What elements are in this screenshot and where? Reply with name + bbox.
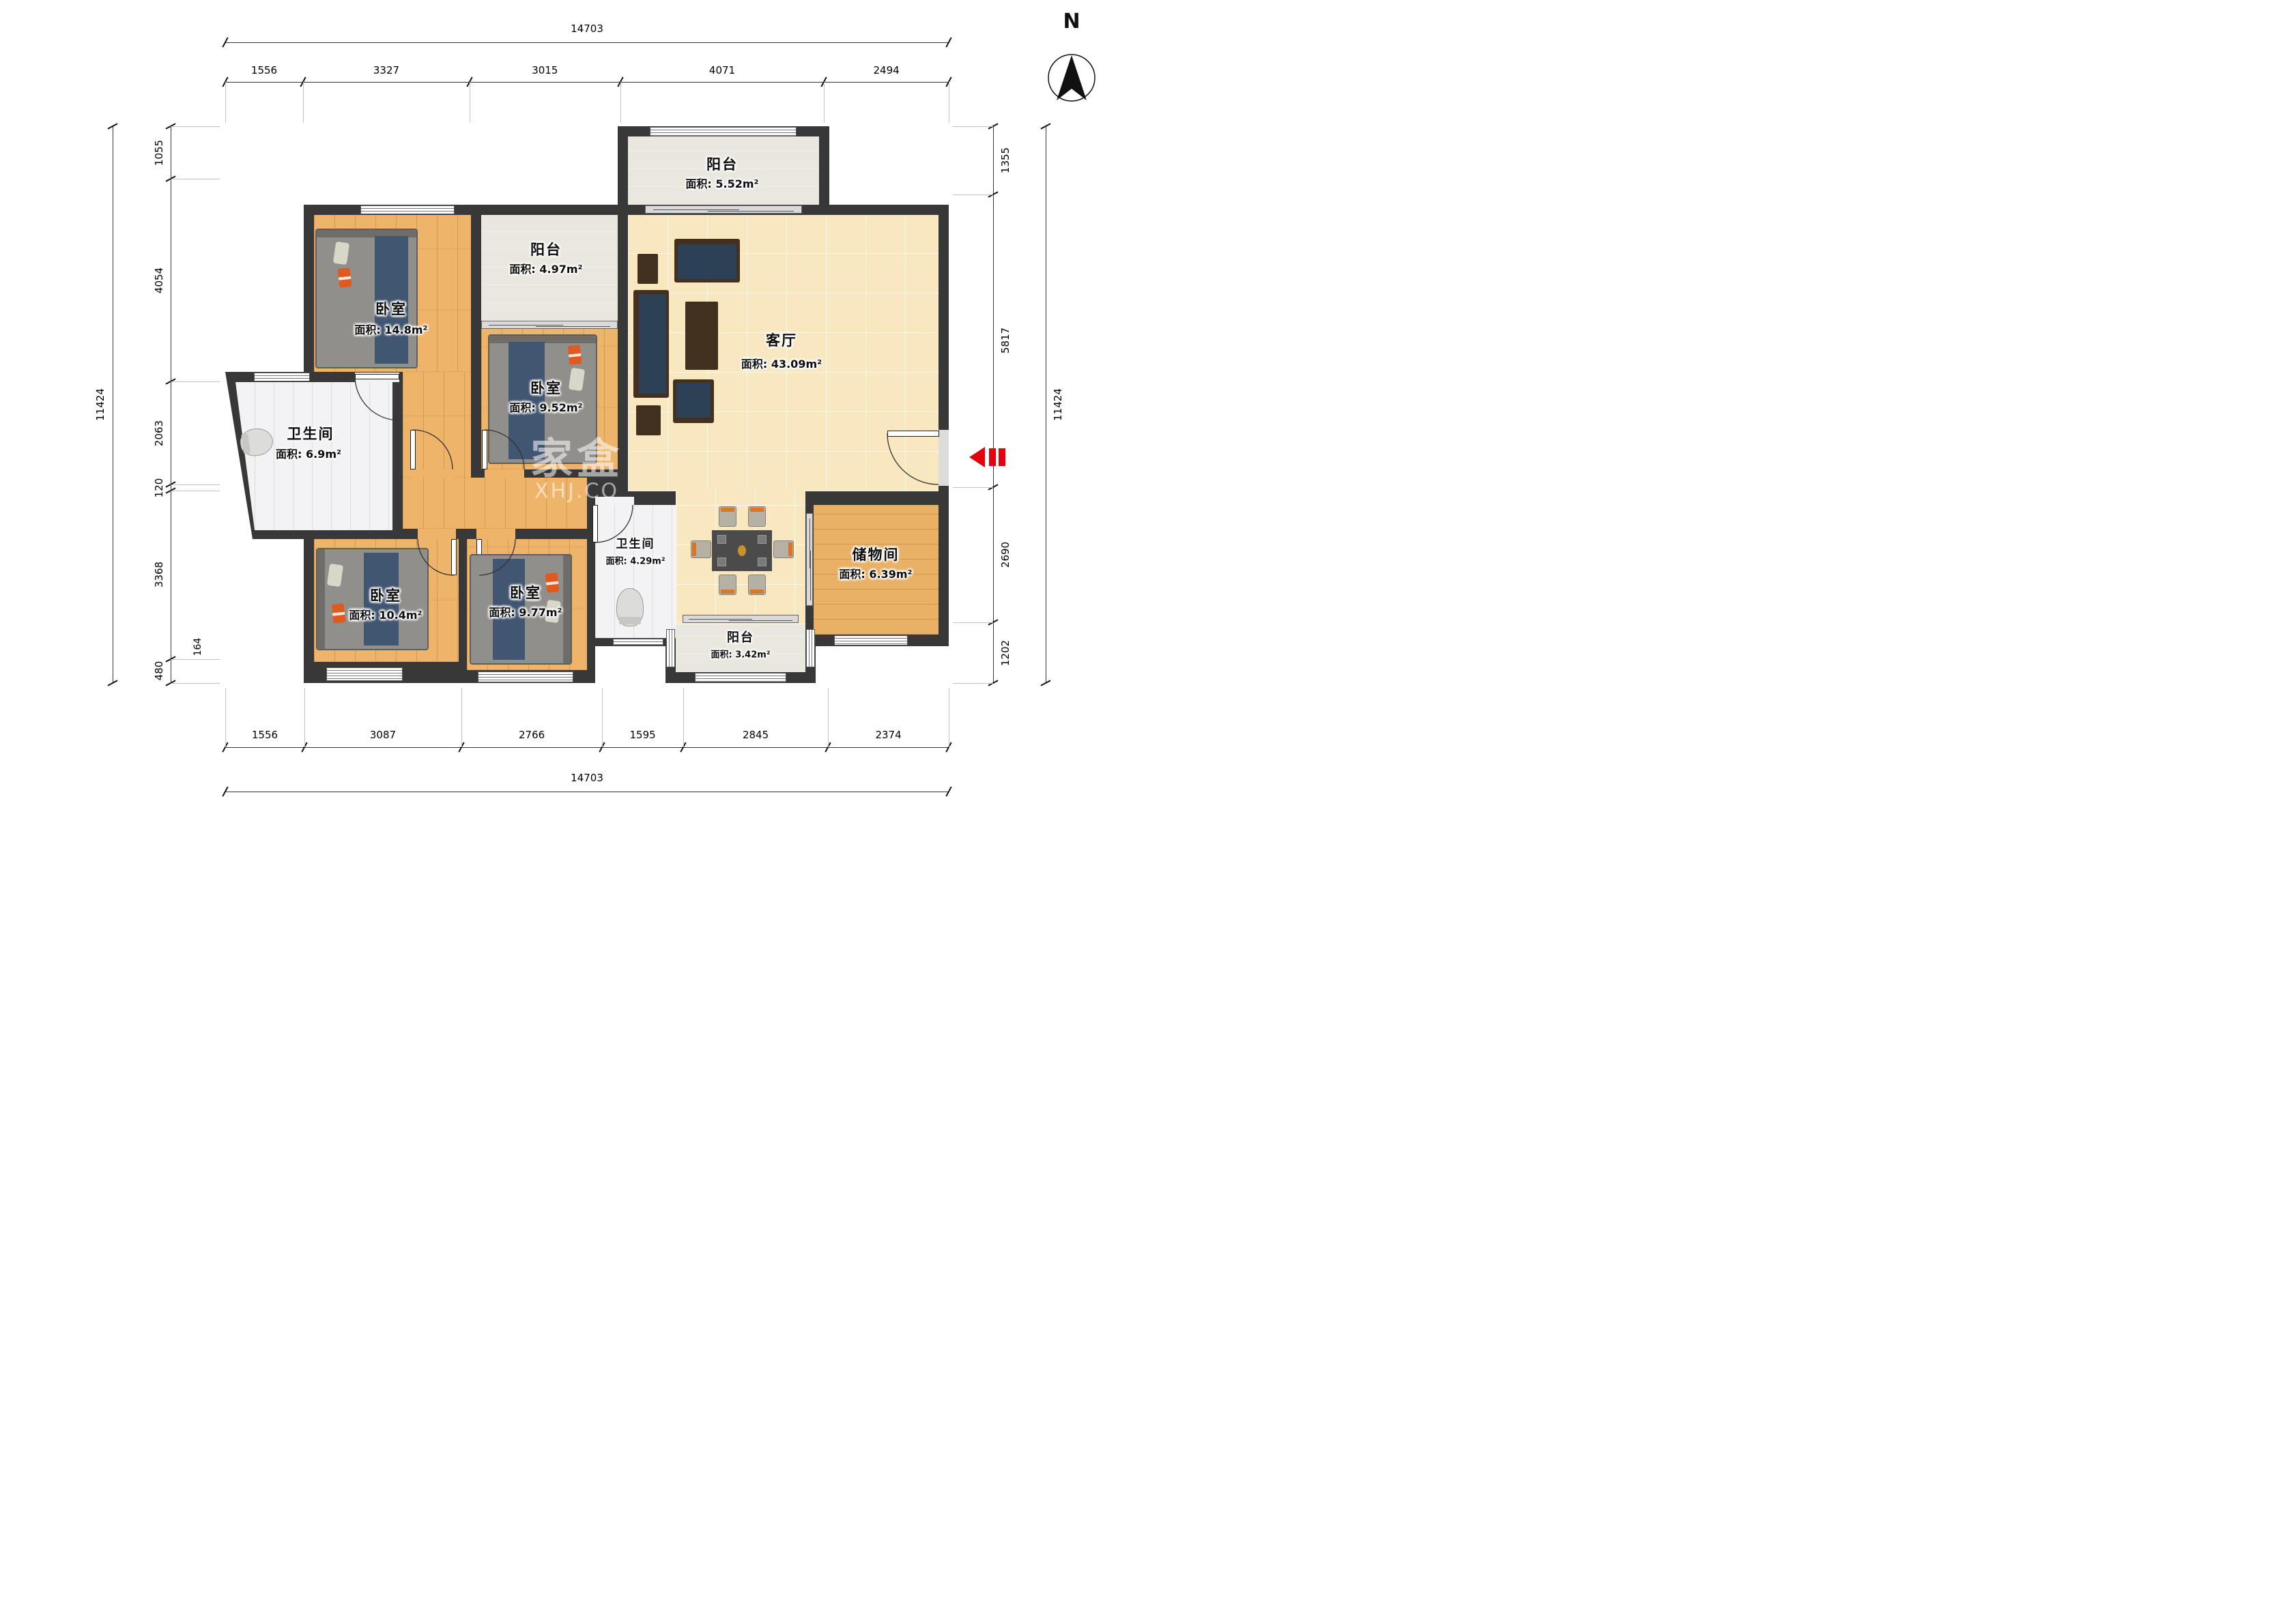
sliding-door [683,615,799,623]
room-name: 卫生间 [616,534,655,551]
watermark: 家盒 XHJ.CO [530,437,623,503]
dimension-extension [171,659,220,660]
room-area-bedroom-bottom-mid: 面积: 9.77m² [489,603,562,620]
door-leaf [482,430,487,469]
window [478,671,573,682]
room-area-bedroom-bottom-left: 面积: 10.4m² [349,606,422,622]
dimension-segment-label: 3327 [373,64,399,76]
room-area-storage: 面积: 6.39m² [839,565,912,581]
dimension-extension [225,688,226,747]
dimension-line [1046,126,1046,683]
dimension-extension [824,82,825,123]
room-label-bathroom-small: 卫生间 [616,534,655,551]
long-sofa [633,290,669,398]
entry-door-leaf [887,431,939,437]
window [254,373,310,381]
window [613,639,663,646]
dimension-segment-label: 2690 [999,542,1012,568]
dimension-segment-label: 11424 [94,388,106,421]
room-area-balcony-mid: 面积: 4.97m² [509,260,582,276]
room-area-bathroom-small: 面积: 4.29m² [605,554,665,567]
room-name: 卧室 [370,585,401,605]
dimension-segment-label: 480 [153,661,165,681]
dimension-line [171,126,171,683]
dimension-extension [171,179,220,179]
window [806,629,815,667]
door-leaf [355,374,399,379]
dining-chair [773,540,794,558]
dimension-extension [171,491,220,491]
room-area-living: 面积: 43.09m² [741,355,822,371]
dining-chair [719,506,736,527]
room-area: 面积: 4.97m² [509,260,582,276]
room-label-living: 客厅 [766,330,797,350]
dimension-segment-label: 120 [153,478,165,497]
room-label-bedroom-bottom-left: 卧室 [370,585,401,605]
dimension-segment-label: 164 [192,638,203,656]
dimension-extension [304,688,305,747]
door-leaf [451,539,457,575]
dimension-segment-label: 1556 [252,729,278,741]
dimension-segment-label: 1595 [630,729,656,741]
sliding-door [806,513,813,606]
dimension-extension [953,194,993,195]
dimension-segment-label: 14703 [571,772,603,784]
room-name: 阳台 [706,154,738,174]
room-name: 卧室 [375,298,407,319]
room-name: 阳台 [530,239,562,259]
door-threshold [418,529,456,539]
room-name: 阳台 [727,628,754,646]
dimension-segment-label: 2374 [875,729,901,741]
room-label-bedroom-mid: 卧室 [530,377,562,398]
dimension-extension [953,622,993,623]
door-leaf [410,430,416,469]
entry-door-threshold [939,430,949,486]
dimension-line [113,126,113,683]
room-area-balcony-bottom: 面积: 3.42m² [711,648,770,661]
coffee-table [685,302,718,370]
room-area: 面积: 3.42m² [711,648,770,661]
watermark-logo-text: 家盒 [530,437,623,481]
dimension-segment-label: 2063 [153,420,165,446]
window [650,127,797,136]
north-compass-icon [1048,55,1095,101]
dimension-extension [171,484,220,485]
dimension-line [225,42,949,43]
dimension-segment-label: 4071 [709,64,735,76]
dimension-extension [953,126,993,127]
dimension-extension [171,126,220,127]
room-name: 客厅 [766,330,797,350]
dining-chair [691,540,711,558]
watermark-url-text: XHJ.CO [530,481,623,503]
dimension-segment-label: 1556 [251,64,277,76]
dimension-segment-label: 2766 [519,729,545,741]
room-label-bedroom-top-left: 卧室 [375,298,407,319]
dimension-extension [171,381,220,382]
dimension-extension [949,688,949,747]
room-name: 卧室 [530,377,562,398]
window [666,629,675,667]
sliding-door [645,205,802,214]
door-leaf [592,505,598,542]
sliding-door [481,321,618,329]
room-label-balcony-top: 阳台 [706,154,738,174]
side-table [638,254,658,284]
dimension-extension [171,683,220,684]
dimension-segment-label: 3368 [153,562,165,588]
door-threshold [476,529,515,539]
room-label-bedroom-bottom-mid: 卧室 [510,582,541,603]
room-label-balcony-bottom: 阳台 [727,628,754,646]
dimension-extension [828,688,829,747]
dimension-segment-label: 11424 [1052,388,1064,421]
room-label-storage: 储物间 [853,544,900,564]
dimension-segment-label: 4054 [153,267,165,293]
dimension-extension [303,82,304,123]
entry-arrow-icon [969,447,1005,467]
room-area-bedroom-mid: 面积: 9.52m² [509,398,582,415]
dimension-line [225,82,949,83]
window [360,205,455,214]
room-label-bathroom-main: 卫生间 [287,423,334,444]
room-area: 面积: 14.8m² [354,321,427,337]
dimension-extension [470,82,470,123]
dimension-extension [602,688,603,747]
dimension-extension [683,688,684,747]
room-area: 面积: 9.77m² [489,603,562,620]
dimension-line [225,747,949,748]
room-area: 面积: 6.9m² [276,445,341,461]
floorplan-canvas: 卧室 面积: 14.8m² 阳台 面积: 4.97m² 阳台 面积: 5.52m… [0,0,1146,812]
room-area-bedroom-top-left: 面积: 14.8m² [354,321,427,337]
armchair [673,379,714,423]
toilet [616,588,644,626]
dimension-line [993,126,994,683]
dining-table [712,530,772,571]
room-area: 面积: 4.29m² [605,554,665,567]
dimension-segment-label: 1355 [999,147,1012,173]
window [326,667,403,681]
dimension-line [225,792,949,792]
loveseat-sofa [674,239,740,282]
dining-chair [748,575,766,595]
dimension-segment-label: 5817 [999,328,1012,353]
dining-chair [748,506,766,527]
dimension-extension [225,82,226,123]
dimension-segment-label: 2494 [874,64,900,76]
dimension-extension [461,688,462,747]
dimension-segment-label: 3015 [532,64,558,76]
dimension-segment-label: 3087 [370,729,396,741]
room-area: 面积: 6.39m² [839,565,912,581]
room-name: 储物间 [853,544,900,564]
dimension-extension [949,82,949,123]
north-label: N [1051,10,1092,33]
dimension-segment-label: 1055 [153,140,165,166]
room-area: 面积: 10.4m² [349,606,422,622]
door-threshold [413,469,453,478]
dimension-segment-label: 2845 [743,729,769,741]
room-name: 卧室 [510,582,541,603]
dimension-extension [620,82,621,123]
room-area-balcony-top: 面积: 5.52m² [685,175,758,191]
room-area: 面积: 9.52m² [509,398,582,415]
side-table [636,405,661,435]
window [695,673,786,682]
room-name: 卫生间 [287,423,334,444]
window [834,635,908,646]
dimension-extension [953,683,993,684]
dimension-segment-label: 14703 [571,23,603,35]
dining-chair [719,575,736,595]
room-label-balcony-mid: 阳台 [530,239,562,259]
room-area: 面积: 5.52m² [685,175,758,191]
dimension-segment-label: 1202 [999,640,1012,666]
room-area: 面积: 43.09m² [741,355,822,371]
dimension-extension [953,487,993,488]
room-area-bathroom-main: 面积: 6.9m² [276,445,341,461]
door-threshold [485,469,524,478]
